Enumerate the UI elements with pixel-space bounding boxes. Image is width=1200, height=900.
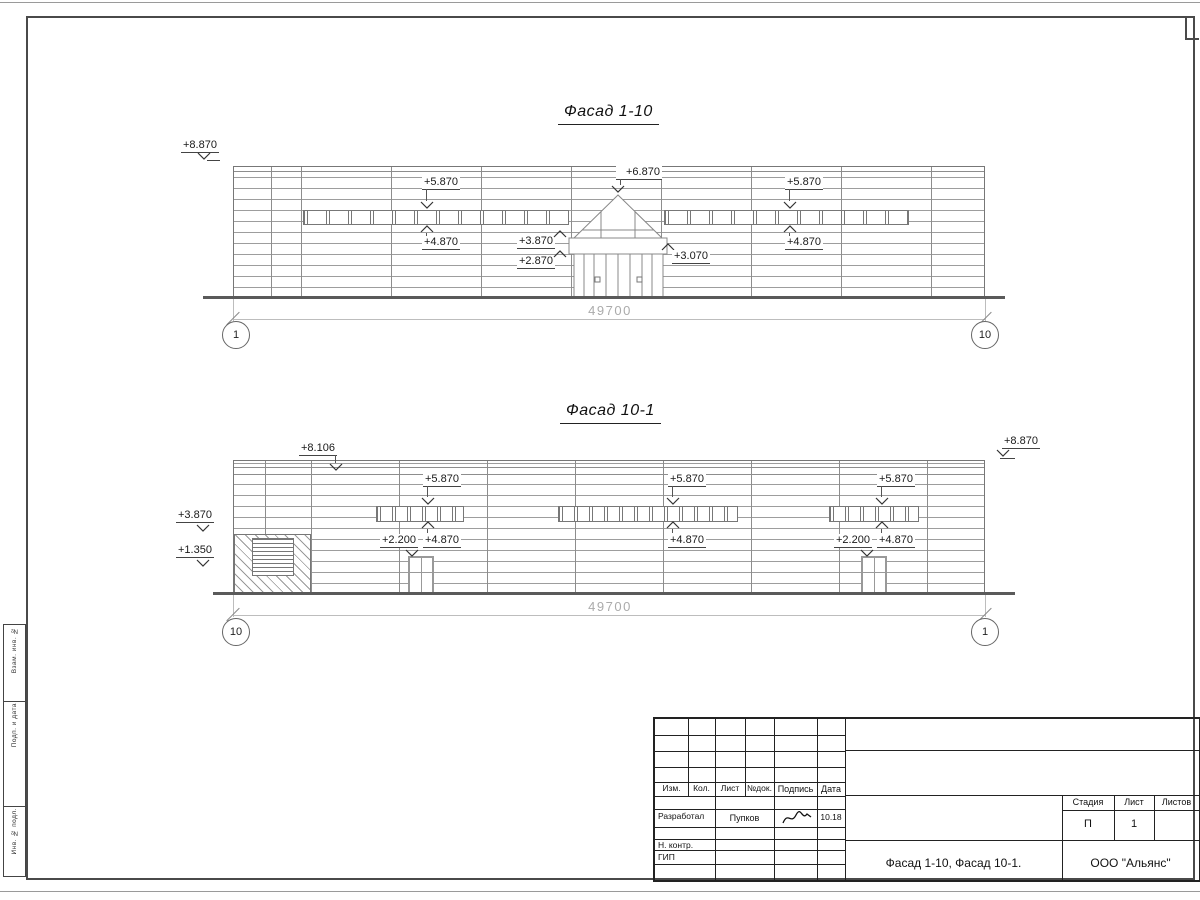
- elevation-mark: +5.870: [877, 473, 915, 487]
- tb-stage-header: Стадия: [1062, 796, 1114, 809]
- elevation-arrow-down-icon: [666, 497, 680, 505]
- elevation-mark: +8.106: [299, 442, 337, 456]
- elevation-arrow-down-icon: [196, 524, 210, 532]
- entrance-gable: [574, 195, 662, 238]
- facade2-drawing: [233, 460, 985, 593]
- side-strip-cell: Подп. и дата: [4, 701, 25, 807]
- leader-line: [881, 486, 882, 497]
- tb-role-developer: Разработал: [658, 811, 718, 821]
- elevation-mark: +8.870: [1002, 435, 1040, 449]
- tb-header-list: Лист: [715, 783, 745, 793]
- elevation-arrow-down-icon: [611, 185, 625, 193]
- elevation-mark: +4.870: [785, 236, 823, 250]
- louver-vent: [252, 538, 294, 576]
- tb-doc-title: Фасад 1-10, Фасад 10-1.: [845, 856, 1062, 870]
- axis-bubble-10: 10: [222, 618, 250, 646]
- elevation-mark: +2.200: [380, 534, 418, 548]
- tb-company: ООО "Альянс": [1062, 856, 1199, 870]
- parapet-line: [234, 474, 984, 475]
- side-strip-cell: Инв. № подл.: [4, 806, 25, 876]
- leader-line: [672, 486, 673, 497]
- elevation-arrow-down-icon: [420, 201, 434, 209]
- leader-line: [427, 529, 428, 533]
- elevation-arrow-down-icon: [329, 463, 343, 471]
- elevation-mark: +8.870: [181, 139, 219, 153]
- elevation-mark: +5.870: [668, 473, 706, 487]
- axis-bubble-1: 1: [222, 321, 250, 349]
- leader-line: [427, 486, 428, 497]
- tb-sheet-value: 1: [1114, 818, 1154, 830]
- elevation-mark: +6.870: [616, 166, 662, 180]
- elevation-arrow-down-icon: [860, 549, 874, 557]
- elevation-arrow-up-icon: [421, 521, 435, 529]
- facade1-window-band-right: [664, 210, 909, 225]
- parapet-line: [234, 467, 984, 468]
- signature-icon: [780, 810, 814, 826]
- facade2-window-band-1: [376, 506, 464, 522]
- title-block: Изм. Кол. Лист №док. Подпись Дата Разраб…: [653, 717, 1200, 882]
- elevation-mark: +4.870: [422, 236, 460, 250]
- axis-bubble-10: 10: [971, 321, 999, 349]
- elevation-mark: +4.870: [877, 534, 915, 548]
- tb-developer-name: Пупков: [715, 812, 774, 825]
- elevation-mark: +2.870: [517, 255, 555, 269]
- elevation-arrow-up-icon: [783, 225, 797, 233]
- tb-sheets-header: Листов: [1154, 796, 1199, 809]
- elevation-mark: +3.870: [176, 509, 214, 523]
- tb-header-izm: Изм.: [655, 783, 688, 793]
- level-tick: [1000, 458, 1015, 459]
- elevation-arrow-up-icon: [553, 230, 567, 238]
- frame-side-strip: Взам. инв. № Подп. и дата Инв. № подл.: [3, 624, 26, 877]
- facade2-door-right: [861, 556, 887, 594]
- tb-developer-date: 10.18: [817, 812, 845, 822]
- elevation-arrow-down-icon: [405, 549, 419, 557]
- elevation-mark: +4.870: [423, 534, 461, 548]
- elevation-arrow-down-icon: [196, 559, 210, 567]
- axis-bubble-1: 1: [971, 618, 999, 646]
- tb-stage-value: П: [1062, 818, 1114, 830]
- entrance-canopy: [569, 238, 667, 254]
- elevation-mark: +2.200: [834, 534, 872, 548]
- facade2-hatched-panel: [234, 534, 311, 594]
- tb-header-kol: Кол.: [688, 783, 715, 793]
- tb-header-data: Дата: [817, 783, 845, 796]
- side-strip-cell: Взам. инв. №: [4, 625, 25, 702]
- facade1-window-band-left: [303, 210, 569, 225]
- elevation-mark: +4.870: [668, 534, 706, 548]
- facade2-ground-line: [213, 592, 1015, 595]
- frame-corner-box: [1185, 18, 1199, 40]
- elevation-arrow-up-icon: [553, 250, 567, 258]
- leader-line: [881, 529, 882, 533]
- elevation-arrow-down-icon: [875, 497, 889, 505]
- elevation-arrow-down-icon: [783, 201, 797, 209]
- side-strip-label: Инв. № подл.: [11, 808, 18, 855]
- facade1-ground-line: [203, 296, 1005, 299]
- elevation-arrow-down-icon: [197, 152, 211, 160]
- leader-line: [672, 529, 673, 533]
- tb-role-gip: ГИП: [658, 852, 718, 862]
- elevation-mark: +5.870: [423, 473, 461, 487]
- sheet-edge-bottom: [0, 891, 1200, 892]
- facade2-overall-dimension: 49700: [570, 599, 650, 614]
- drawing-sheet: Взам. инв. № Подп. и дата Инв. № подл. Ф…: [0, 0, 1200, 900]
- tb-header-podpis: Подпись: [774, 783, 817, 796]
- leader-line: [789, 189, 790, 201]
- elevation-arrow-down-icon: [421, 497, 435, 505]
- dimension-line: [233, 615, 985, 616]
- facade1-overall-dimension: 49700: [570, 303, 650, 318]
- elevation-arrow-up-icon: [420, 225, 434, 233]
- facade2-title: Фасад 10-1: [560, 402, 661, 424]
- leader-line: [426, 189, 427, 201]
- facade1-title: Фасад 1-10: [558, 103, 659, 125]
- sheet-edge-top: [0, 2, 1200, 3]
- facade1-entrance: [564, 189, 670, 299]
- leader-line: [335, 455, 336, 463]
- elevation-mark: +5.870: [422, 176, 460, 190]
- elevation-mark: +5.870: [785, 176, 823, 190]
- side-strip-label: Взам. инв. №: [11, 627, 18, 673]
- dimension-line: [233, 319, 985, 320]
- elevation-mark: +3.870: [517, 235, 555, 249]
- tb-sheet-header: Лист: [1114, 796, 1154, 809]
- facade1-drawing: [233, 166, 985, 298]
- facade2-window-band-3: [829, 506, 919, 522]
- elevation-mark: +3.070: [672, 250, 710, 264]
- tb-header-ndoc: №док.: [745, 783, 774, 793]
- side-strip-label: Подп. и дата: [11, 703, 18, 747]
- elevation-arrow-down-icon: [996, 449, 1010, 457]
- tb-role-ncontrol: Н. контр.: [658, 840, 718, 850]
- level-tick: [207, 160, 220, 161]
- parapet-line: [234, 171, 984, 172]
- elevation-arrow-up-icon: [875, 521, 889, 529]
- elevation-mark: +1.350: [176, 544, 214, 558]
- facade2-door-left: [408, 556, 434, 594]
- elevation-arrow-up-icon: [666, 521, 680, 529]
- facade2-window-band-2: [558, 506, 738, 522]
